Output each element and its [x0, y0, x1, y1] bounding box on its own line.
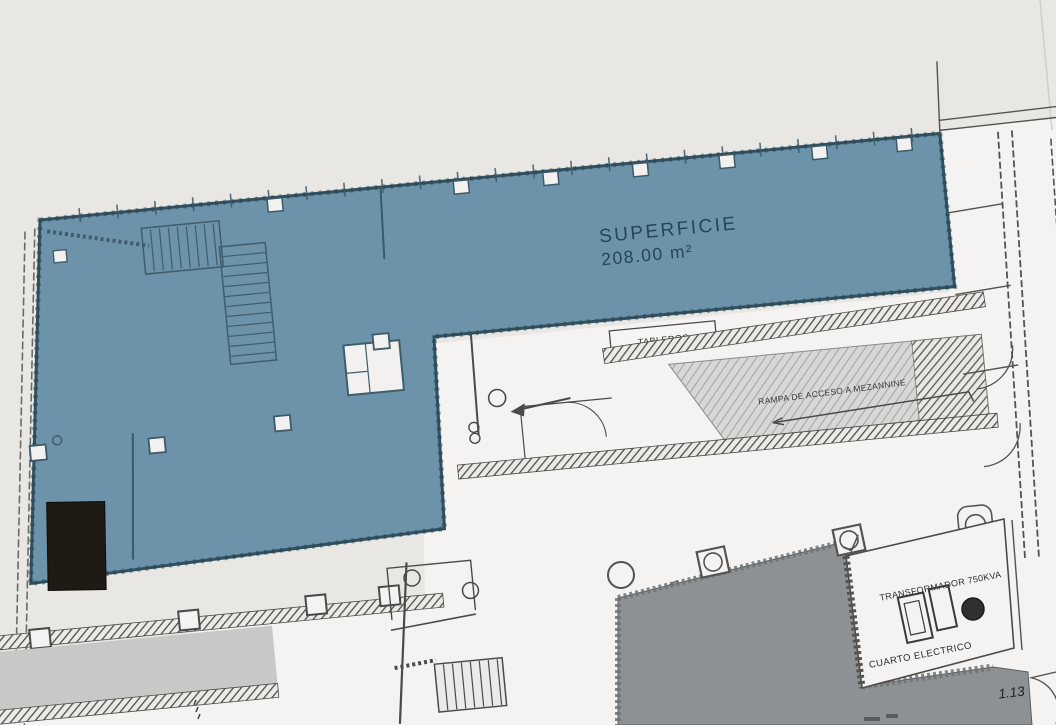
dark-shaft: [47, 502, 107, 591]
floor-plan-svg: SUPERFICIE 208.00 m²: [0, 0, 1056, 725]
meter-bank: [912, 334, 989, 420]
transformer-circle: [962, 598, 984, 620]
